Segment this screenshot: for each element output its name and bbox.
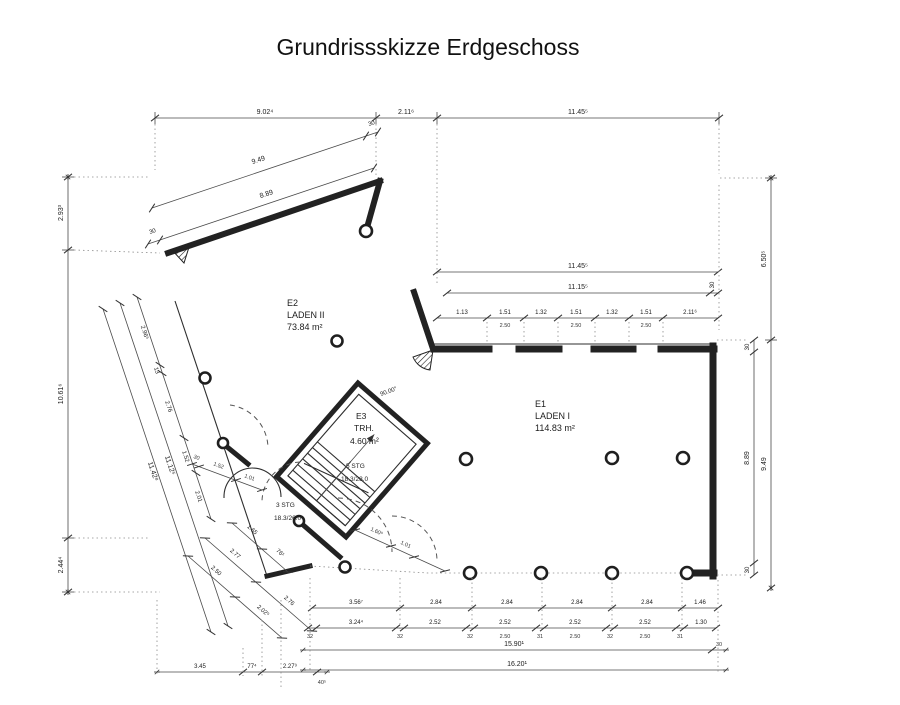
- dim-label: 9.49: [251, 155, 266, 166]
- wall-bottom-left: [267, 566, 310, 576]
- dim-chain-lower-left: 2.77 2.76 2.50 2.02⁵ 1.65 76¹: [183, 518, 317, 643]
- dim-label: 1.32: [606, 310, 618, 316]
- room-label-e3: E3 TRH. 4.60 m²: [350, 411, 379, 446]
- dim-label: 2.93³: [58, 204, 65, 221]
- dim-label: 77⁴: [247, 663, 257, 670]
- door-arc: [230, 405, 268, 448]
- column: [332, 336, 343, 347]
- dim-label: 6.50⁵: [761, 251, 768, 268]
- dim-sublabel: 2.50: [500, 323, 511, 329]
- room-name: LADEN II: [287, 310, 325, 320]
- dim-label: 11.12⁵: [163, 455, 176, 476]
- dim-sublabel: 2.50: [640, 634, 651, 640]
- room-id: E1: [535, 399, 546, 409]
- dim-label: 2.52: [499, 620, 511, 626]
- column: [340, 562, 351, 573]
- room-label-e1: E1 LADEN I 114.83 m²: [535, 399, 575, 433]
- dim-label: 2.44⁴: [58, 557, 65, 574]
- column: [535, 567, 547, 579]
- dim-label: 40⁵: [318, 679, 326, 686]
- dim-chain-right: 6.50⁵ 9.49 30 8.89 30: [717, 175, 777, 591]
- dim-label: 2.84: [571, 600, 583, 606]
- dim-label: 2.84: [641, 600, 653, 606]
- shopfront-line-bottom: [310, 566, 687, 573]
- stair-angle-label: 90.00°: [380, 386, 399, 398]
- door-arc: [224, 468, 252, 498]
- column: [360, 225, 372, 237]
- floor-plan-drawing: Grundrissskizze Erdgeschoss: [0, 0, 900, 705]
- junction-angle-hatch: [413, 350, 433, 370]
- dim-label: 76¹: [274, 548, 284, 558]
- room-area: 114.83 m²: [535, 423, 575, 433]
- dim-label: 1.46: [694, 600, 706, 606]
- dim-label: 2.11⁶: [683, 309, 697, 316]
- dim-label: 2.84: [430, 600, 442, 606]
- room-name: TRH.: [354, 423, 374, 433]
- dim-label: 32: [607, 634, 613, 640]
- dim-label: 30: [745, 566, 751, 573]
- dim-label: 30: [192, 454, 200, 462]
- dim-chain-left: 2.93³ 10.61⁶ 2.44⁴: [58, 174, 160, 595]
- column: [200, 373, 211, 384]
- wall-neck: [414, 292, 433, 349]
- dim-label: 2.96⁵: [139, 325, 150, 341]
- dim-label: 8.89: [259, 189, 274, 200]
- room-id: E2: [287, 298, 298, 308]
- dim-sublabel: 2.50: [641, 323, 652, 329]
- dim-label: 3.56⁷: [349, 599, 363, 606]
- column: [460, 453, 472, 465]
- dim-label: 11.45⁵: [568, 263, 588, 270]
- dim-label: 2.52: [569, 620, 581, 626]
- dim-label: 1.51: [499, 310, 511, 316]
- dim-label: 10.61⁶: [58, 384, 65, 405]
- dim-label: 3.24⁴: [349, 619, 364, 626]
- dim-label: 2.77: [228, 548, 241, 561]
- dim-sublabel: 2.50: [571, 323, 582, 329]
- door-arc: [392, 516, 437, 561]
- room-id: E3: [356, 411, 367, 421]
- stair-steps-lower: 3 STG: [276, 502, 295, 509]
- dim-label: 2.02⁵: [255, 604, 271, 619]
- dim-label: 9.49: [761, 457, 768, 471]
- dim-label: 9.02⁴: [257, 109, 274, 116]
- dim-label: 2.11⁶: [398, 109, 414, 116]
- column: [606, 567, 618, 579]
- page-title: Grundrissskizze Erdgeschoss: [277, 34, 580, 60]
- dim-label: 11.42⁸: [146, 461, 159, 482]
- dim-label: 2.76: [282, 595, 295, 608]
- dim-label: 30: [745, 343, 751, 350]
- floor-plan-sheet: Grundrissskizze Erdgeschoss: [0, 0, 900, 705]
- dim-label: 1.65: [245, 524, 258, 537]
- columns: [200, 225, 694, 579]
- dim-label: 8.89: [744, 451, 751, 465]
- dim-label: 2.84: [501, 600, 513, 606]
- dim-label: 30: [368, 120, 377, 128]
- dim-label: 2.01: [193, 490, 203, 504]
- dim-label: 1.01: [399, 540, 411, 550]
- dim-label: 3.45: [194, 664, 206, 670]
- dim-label: 32: [467, 634, 473, 640]
- dim-chain-e1-top: 11.45⁵ 11.15⁵ 30 1.13 1.51 1.32 1.51 1.3…: [433, 263, 722, 343]
- dim-sublabel: 2.50: [570, 634, 581, 640]
- dim-label: 30: [710, 281, 716, 288]
- stair-steps-upper: 5 STG: [346, 463, 365, 470]
- dim-label: 1.13: [456, 310, 468, 316]
- dim-chain-bottom: 3.56⁷ 2.84 2.84 2.84 2.84 1.46 32 3.24⁴ …: [157, 578, 726, 688]
- stairwell: [277, 383, 428, 537]
- dim-label: 1.51: [570, 310, 582, 316]
- dim-label: 11.15⁵: [568, 284, 588, 291]
- dim-label: 1.01: [243, 473, 255, 482]
- stair-ratio-lower: 18.3/26.0: [274, 515, 301, 522]
- dim-label: 32: [397, 634, 403, 640]
- dim-chain-diag-top: 9.49 30 8.89 30: [143, 120, 383, 248]
- room-label-e2: E2 LADEN II 73.84 m²: [287, 298, 325, 332]
- dim-label: 1.51: [640, 310, 652, 316]
- door-post: [218, 438, 228, 448]
- room-area: 4.60 m²: [350, 436, 379, 446]
- dim-label: 30: [716, 642, 722, 648]
- dim-label: 1.30: [695, 620, 707, 626]
- column: [681, 567, 693, 579]
- dim-label: 15.90¹: [504, 641, 525, 648]
- dim-label: 13: [152, 367, 160, 376]
- column: [606, 452, 618, 464]
- door-post-stub: [226, 446, 248, 464]
- dimension-lines: 9.02⁴ 2.11⁶ 11.45⁵ 9.49 30 8.89 30: [58, 109, 777, 688]
- dim-label: 11.45⁵: [568, 109, 588, 116]
- dim-label: 2.27⁹: [283, 663, 298, 670]
- column: [464, 567, 476, 579]
- dim-label: 31: [537, 634, 543, 640]
- dim-label: 1.52: [212, 461, 224, 470]
- dim-label: 2.76: [163, 400, 173, 414]
- column: [677, 452, 689, 464]
- dim-label: 2.52: [639, 620, 651, 626]
- room-area: 73.84 m²: [287, 322, 323, 332]
- dim-label: 1.32: [535, 310, 547, 316]
- dim-label: 1.60⁵: [369, 526, 384, 538]
- dim-label: 2.52: [429, 620, 441, 626]
- dim-chain-top: 9.02⁴ 2.11⁶ 11.45⁵: [151, 109, 723, 286]
- dim-label: 30: [149, 228, 158, 236]
- dim-sublabel: 2.50: [500, 634, 511, 640]
- dim-label: 16.20¹: [507, 661, 528, 668]
- stair-ratio-upper: 18.3/28.0: [341, 476, 368, 483]
- room-name: LADEN I: [535, 411, 570, 421]
- walls: [168, 181, 715, 576]
- dim-label: 31: [677, 634, 683, 640]
- wall-pier-hatch: [172, 244, 190, 263]
